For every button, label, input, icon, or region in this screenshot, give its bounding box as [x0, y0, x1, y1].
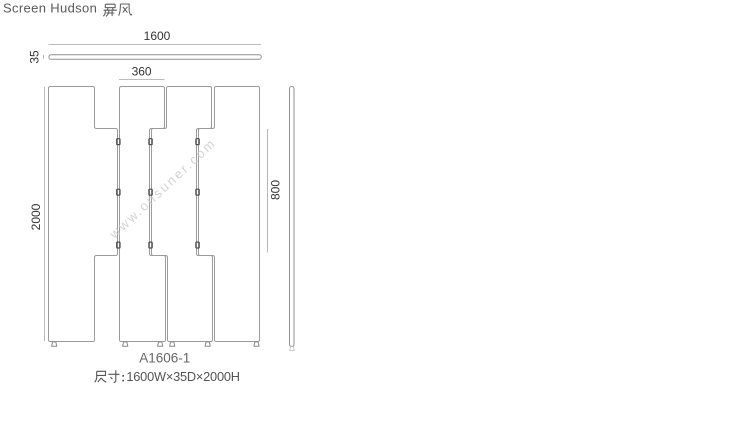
svg-text:35: 35 — [28, 50, 42, 64]
svg-text:1600W×35D×2000H: 1600W×35D×2000H — [126, 369, 239, 384]
svg-text:800: 800 — [268, 180, 282, 200]
svg-text:360: 360 — [132, 64, 152, 78]
svg-text:2000: 2000 — [29, 203, 43, 230]
svg-text:Screen Hudson: Screen Hudson — [3, 1, 97, 16]
svg-text:A1606-1: A1606-1 — [139, 350, 190, 365]
svg-text:1600: 1600 — [144, 29, 171, 43]
